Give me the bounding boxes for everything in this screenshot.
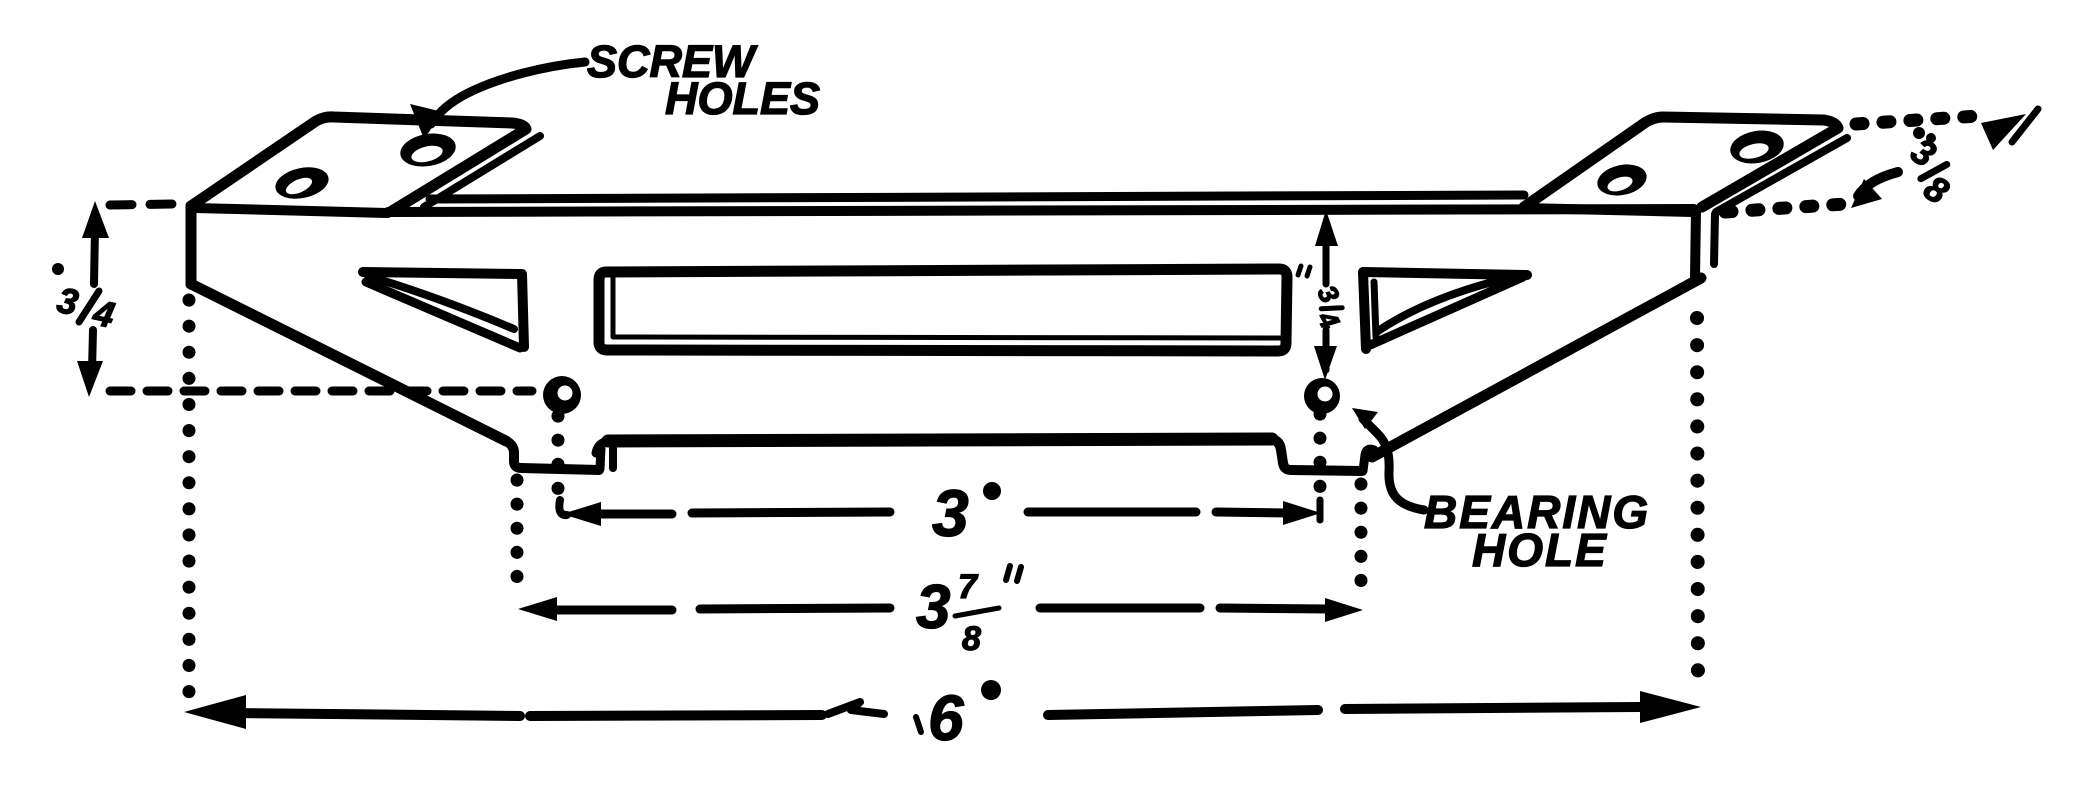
svg-text:3: 3 — [916, 573, 950, 642]
svg-text:7: 7 — [958, 568, 979, 606]
svg-text:6: 6 — [928, 682, 964, 754]
svg-text:8: 8 — [962, 620, 981, 658]
svg-text:3: 3 — [1311, 281, 1345, 308]
svg-text:HOLES: HOLES — [665, 73, 820, 124]
svg-text:HOLE: HOLE — [1472, 524, 1608, 576]
svg-text:3: 3 — [54, 279, 82, 323]
svg-text:8: 8 — [1917, 167, 1956, 212]
svg-text:3: 3 — [932, 476, 969, 550]
